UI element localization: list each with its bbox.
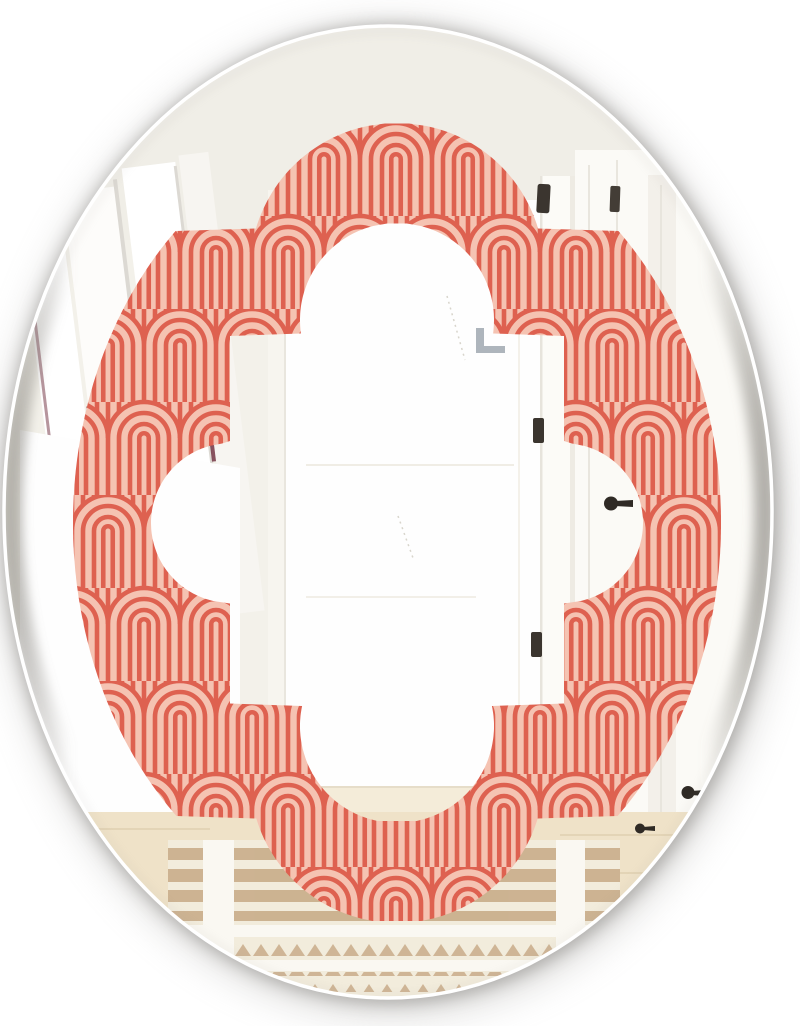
door-hinge-top bbox=[536, 184, 550, 214]
door-hinge-mid bbox=[533, 418, 544, 443]
door-hinge-top2 bbox=[610, 186, 621, 212]
mirror-scene bbox=[0, 0, 800, 1026]
door-hinge-low bbox=[531, 632, 542, 657]
product-photo bbox=[0, 0, 800, 1026]
far-room-line1 bbox=[306, 464, 514, 466]
far-room-line2 bbox=[306, 596, 476, 598]
